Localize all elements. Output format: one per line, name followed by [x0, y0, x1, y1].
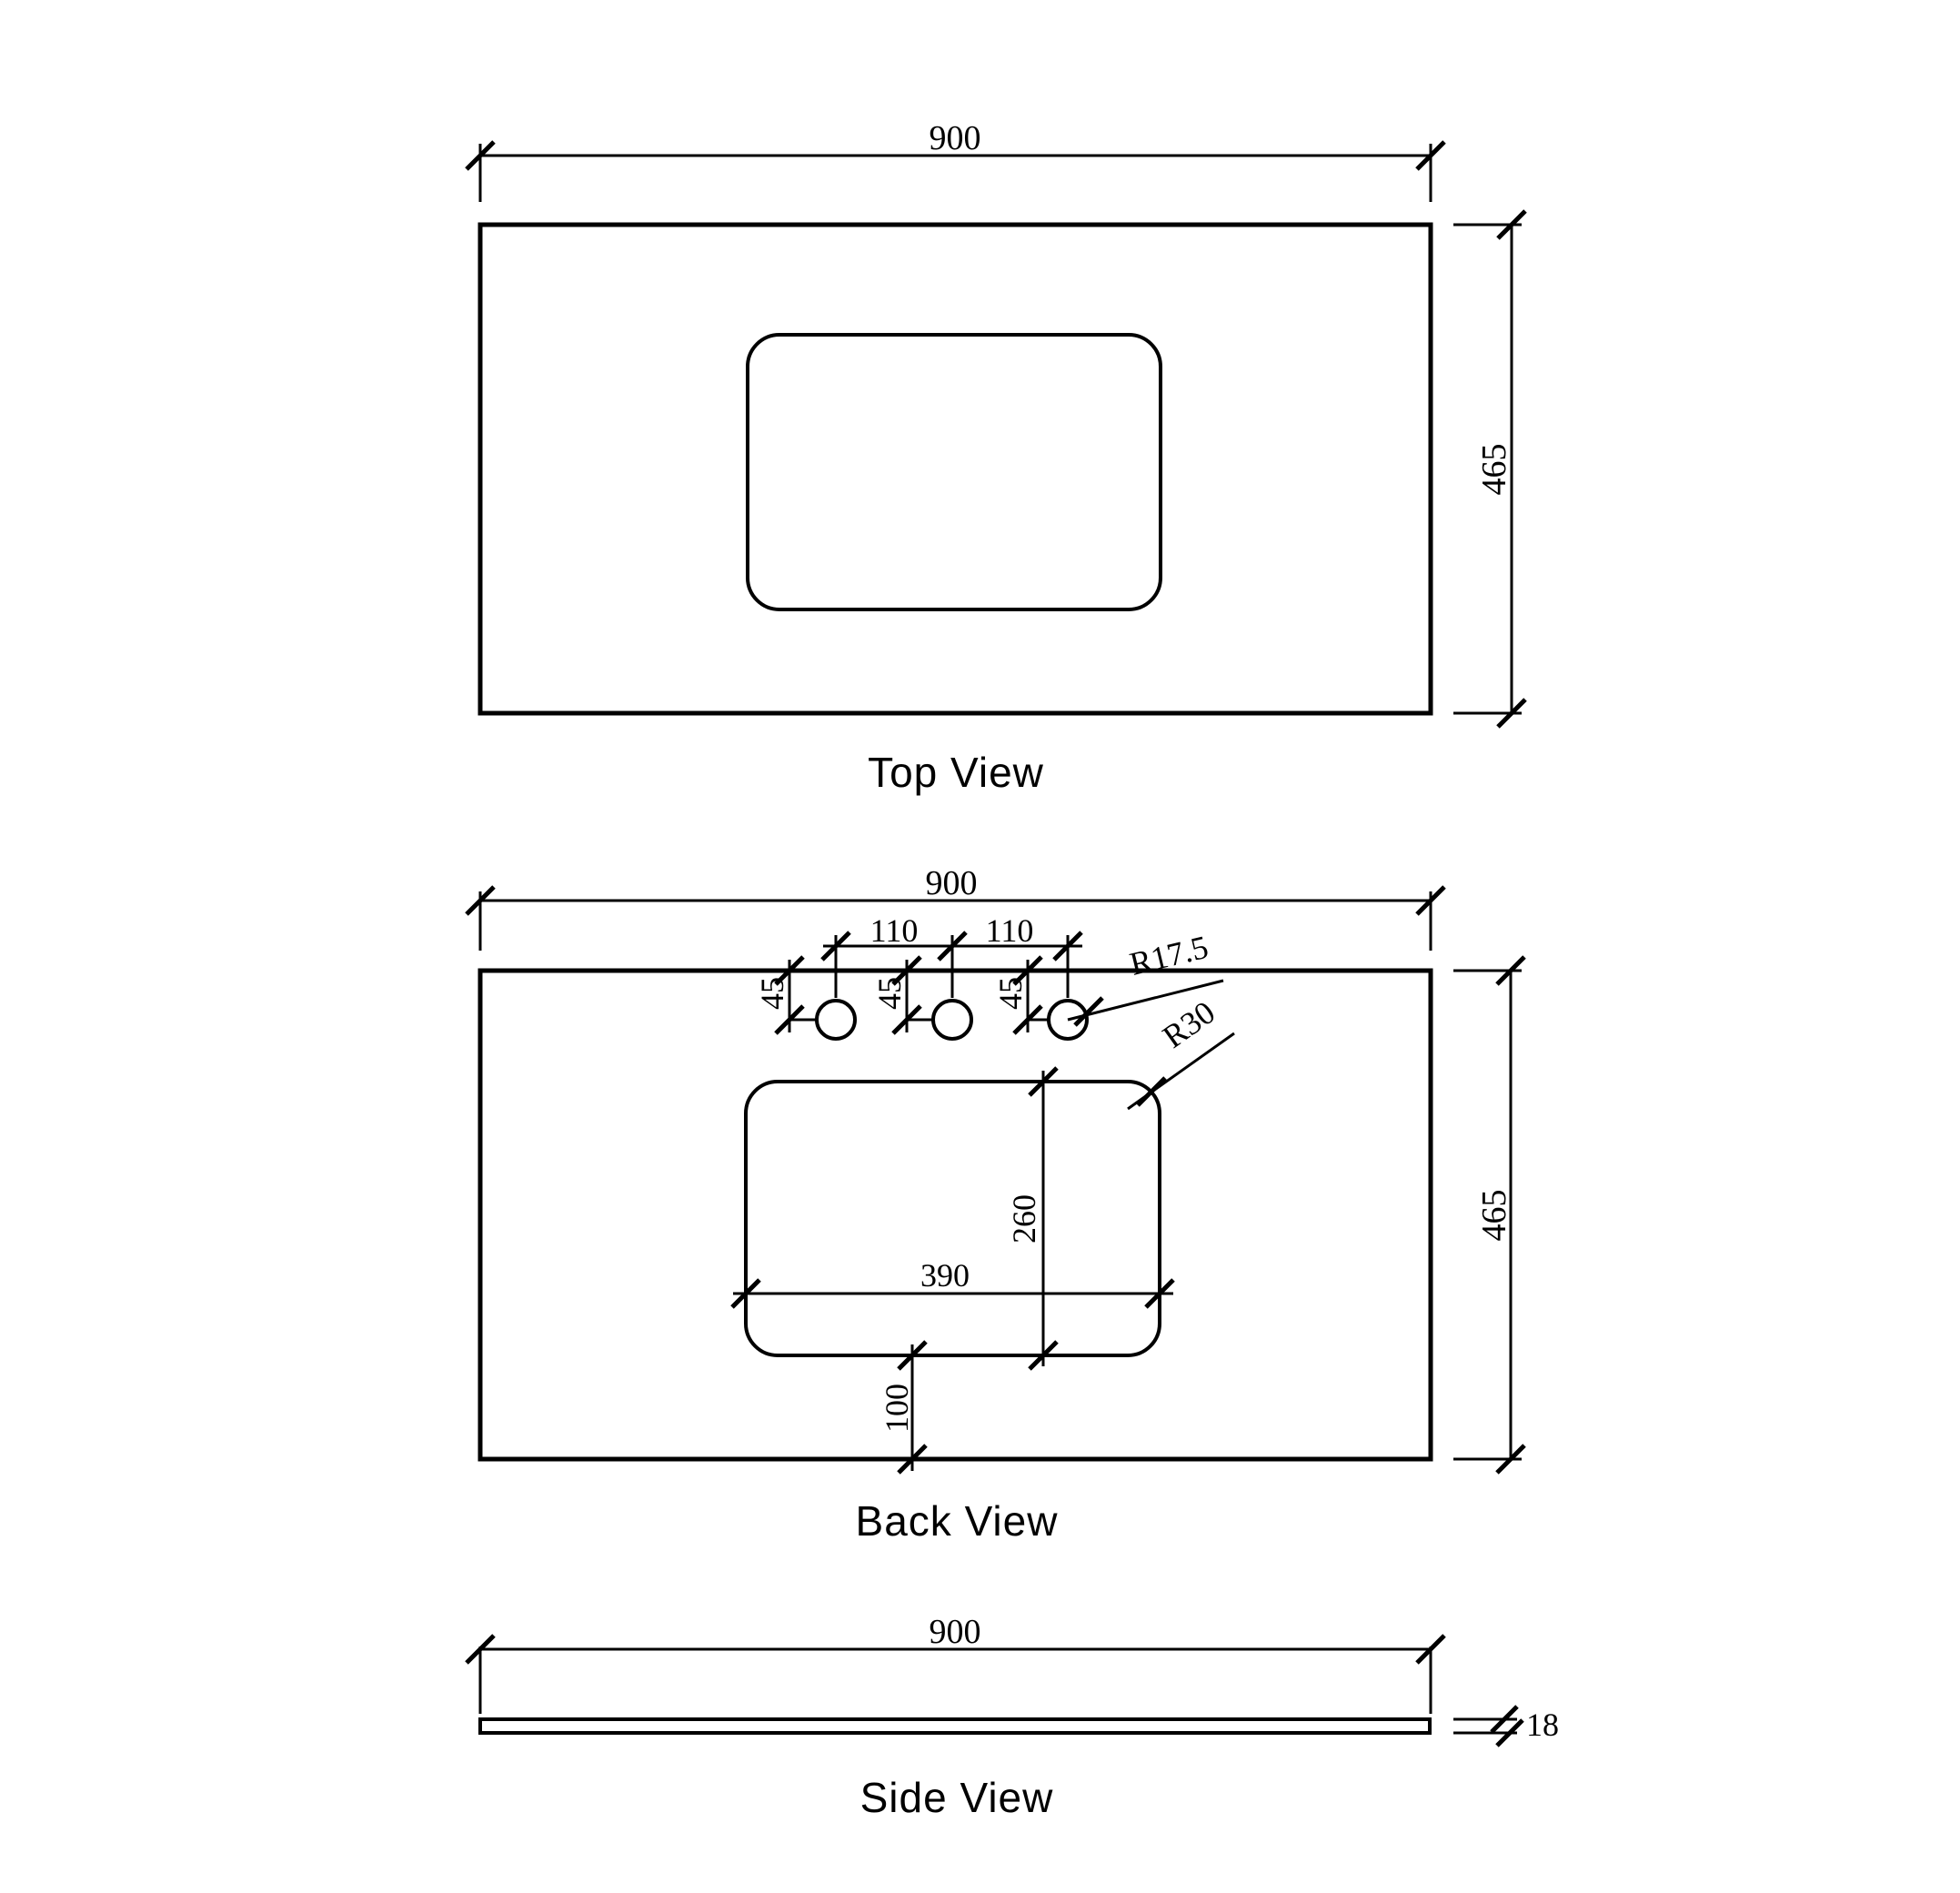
back-view-panel-outline	[480, 971, 1431, 1459]
side-view-label: Side View	[860, 1774, 1054, 1821]
hole-setback-dim-3: 45	[992, 977, 1029, 1010]
hole-setback-dim-1: 45	[754, 977, 790, 1010]
back-view-label: Back View	[856, 1497, 1059, 1545]
top-view: 900 465 Top View	[467, 119, 1525, 796]
technical-drawing: 900 465 Top View 900 110 110	[0, 0, 1960, 1893]
thickness-dim: 18	[1526, 1707, 1559, 1743]
top-height-dim: 465	[1475, 444, 1513, 496]
cutout-height-dim: 260	[1006, 1194, 1042, 1244]
back-height-dim: 465	[1475, 1190, 1513, 1242]
side-view-slab-profile	[480, 1719, 1430, 1733]
back-width-dim: 900	[926, 864, 978, 902]
back-view: 900 110 110 45 45 45	[467, 864, 1524, 1545]
drawing-sheet: 900 465 Top View 900 110 110	[0, 0, 1960, 1893]
side-width-dim: 900	[930, 1613, 981, 1651]
hole-setback-dim-2: 45	[871, 977, 908, 1010]
side-view: 900 18 Side View	[467, 1613, 1559, 1821]
top-view-label: Top View	[868, 749, 1044, 796]
cutout-width-dim: 390	[920, 1257, 970, 1294]
top-width-dim: 900	[930, 119, 981, 157]
cutout-bottom-offset-dim: 100	[879, 1384, 915, 1433]
top-view-panel-outline	[480, 225, 1431, 713]
hole-spacing-dim-left: 110	[870, 912, 919, 949]
hole-spacing-dim-right: 110	[986, 912, 1034, 949]
